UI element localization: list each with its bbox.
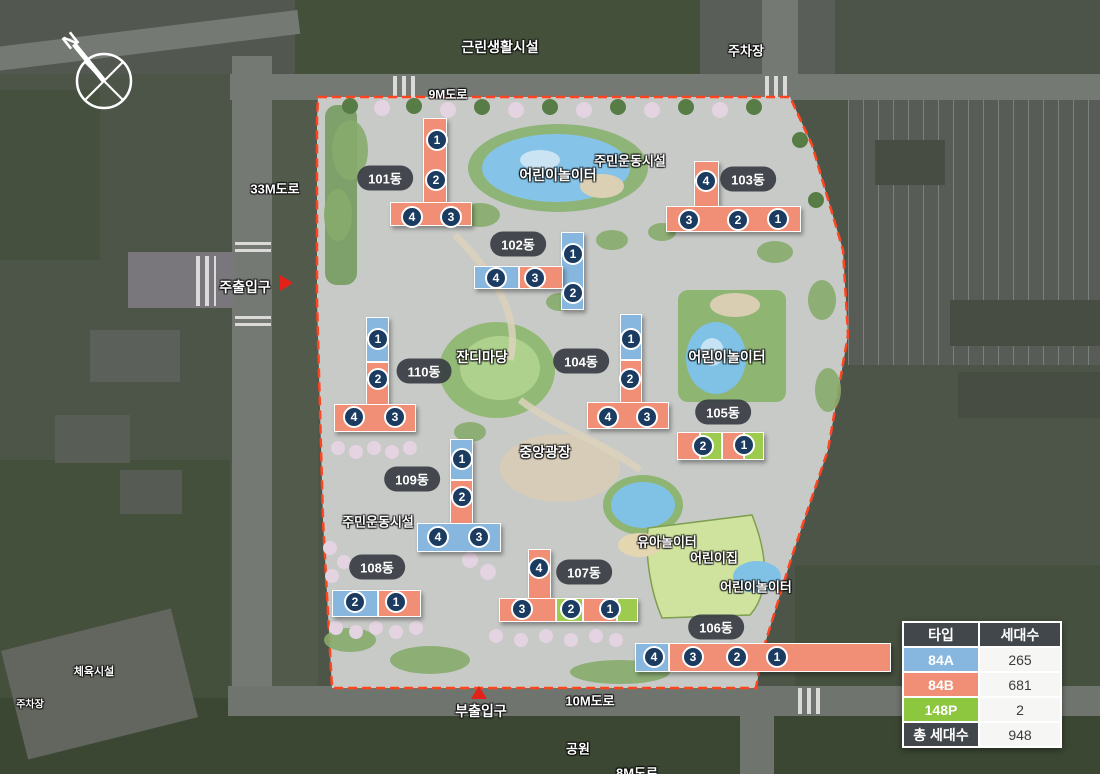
unit-circle: 2 (692, 435, 714, 457)
building-label-110: 110동 (397, 359, 452, 384)
label-parking-bottom-left: 주차장 (16, 696, 44, 711)
label-park: 공원 (566, 739, 590, 758)
label-lawn: 잔디마당 (456, 347, 508, 367)
label-plaza: 중앙광장 (519, 442, 571, 462)
label-neighborhood-facility: 근린생활시설 (461, 37, 538, 57)
unit-circle: 2 (367, 368, 389, 390)
unit-circle: 2 (726, 646, 748, 668)
unit-circle: 4 (343, 406, 365, 428)
legend-type-84b: 84B (904, 673, 978, 696)
building-label-108: 108동 (349, 555, 405, 580)
unit-circle: 1 (562, 243, 584, 265)
unit-circle: 2 (451, 486, 473, 508)
legend-type-84a: 84A (904, 648, 978, 671)
unit-circle: 3 (682, 646, 704, 668)
unit-circle: 4 (528, 557, 550, 579)
label-sub-entrance: 부출입구 (455, 701, 507, 721)
label-parking-top: 주차장 (728, 41, 764, 60)
building-label-106: 106동 (688, 615, 744, 640)
unit-circle: 1 (385, 591, 407, 613)
label-daycare: 어린이집 (690, 548, 738, 567)
label-road-33m: 33M도로 (250, 179, 299, 198)
label-road-9m: 9M도로 (429, 86, 468, 103)
unit-circle: 2 (425, 169, 447, 191)
unit-circle: 4 (643, 646, 665, 668)
unit-circle: 1 (599, 598, 621, 620)
unit-circle: 2 (727, 209, 749, 231)
legend-header-type: 타입 (904, 623, 978, 646)
legend-type-148p: 148P (904, 698, 978, 721)
legend-total-count: 948 (980, 723, 1060, 746)
unit-circle: 2 (560, 598, 582, 620)
legend-count-84a: 265 (980, 648, 1060, 671)
building-label-101: 101동 (357, 166, 413, 191)
main-entrance-arrow-icon (280, 275, 293, 291)
building-label-105: 105동 (695, 400, 751, 425)
unit-circle: 3 (440, 206, 462, 228)
legend-count-148p: 2 (980, 698, 1060, 721)
unit-circle: 4 (427, 526, 449, 548)
unit-circle: 1 (767, 208, 789, 230)
label-playground-bottom: 어린이놀이터 (720, 577, 792, 596)
legend-table: 타입 세대수 84A 265 84B 681 148P 2 총 세대수 948 (902, 621, 1062, 748)
unit-circle: 3 (468, 526, 490, 548)
building-label-109: 109동 (384, 467, 440, 492)
building-label-104: 104동 (553, 349, 609, 374)
label-exercise-top: 주민운동시설 (594, 151, 666, 170)
label-sports-field: 체육시설 (74, 663, 114, 679)
unit-circle: 1 (426, 129, 448, 151)
unit-circle: 2 (562, 282, 584, 304)
unit-circle: 2 (344, 591, 366, 613)
unit-circle: 1 (733, 434, 755, 456)
unit-circle: 1 (367, 328, 389, 350)
unit-circle: 4 (695, 170, 717, 192)
unit-circle: 1 (451, 448, 473, 470)
compass-rose: N (52, 26, 152, 122)
unit-circle: 1 (766, 646, 788, 668)
legend-header-count: 세대수 (980, 623, 1060, 646)
legend-count-84b: 681 (980, 673, 1060, 696)
site-plan: 1 2 4 3 101동 1 2 4 3 102동 4 3 2 1 103동 1… (0, 0, 1100, 774)
label-playground-top: 어린이놀이터 (519, 165, 596, 185)
unit-circle: 3 (524, 267, 546, 289)
building-label-107: 107동 (556, 560, 612, 585)
label-playground-right: 어린이놀이터 (688, 347, 765, 367)
unit-circle: 3 (511, 598, 533, 620)
unit-circle: 4 (401, 206, 423, 228)
unit-circle: 3 (384, 406, 406, 428)
unit-circle: 4 (485, 267, 507, 289)
label-road-8m: 8M도로 (616, 763, 658, 774)
unit-circle: 1 (620, 328, 642, 350)
building-label-102: 102동 (490, 232, 546, 257)
label-toddler-playground: 유아놀이터 (637, 532, 697, 551)
sub-entrance-arrow-icon (471, 686, 487, 699)
unit-circle: 4 (597, 406, 619, 428)
label-road-10m: 10M도로 (565, 691, 614, 710)
legend-total-label: 총 세대수 (904, 723, 978, 746)
label-main-entrance: 주출입구 (219, 277, 271, 297)
label-exercise-left: 주민운동시설 (342, 512, 414, 531)
unit-circle: 3 (678, 209, 700, 231)
unit-circle: 3 (636, 406, 658, 428)
building-label-103: 103동 (720, 167, 776, 192)
unit-circle: 2 (619, 368, 641, 390)
